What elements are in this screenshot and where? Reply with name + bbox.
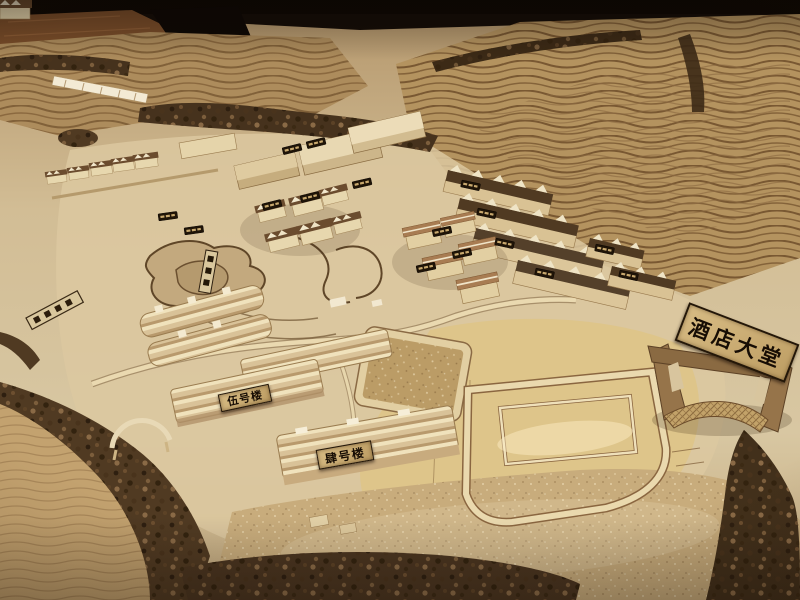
model-photo: 酒店大堂 伍号楼 肆号楼 xyxy=(0,0,800,600)
scenery-svg xyxy=(0,0,800,600)
